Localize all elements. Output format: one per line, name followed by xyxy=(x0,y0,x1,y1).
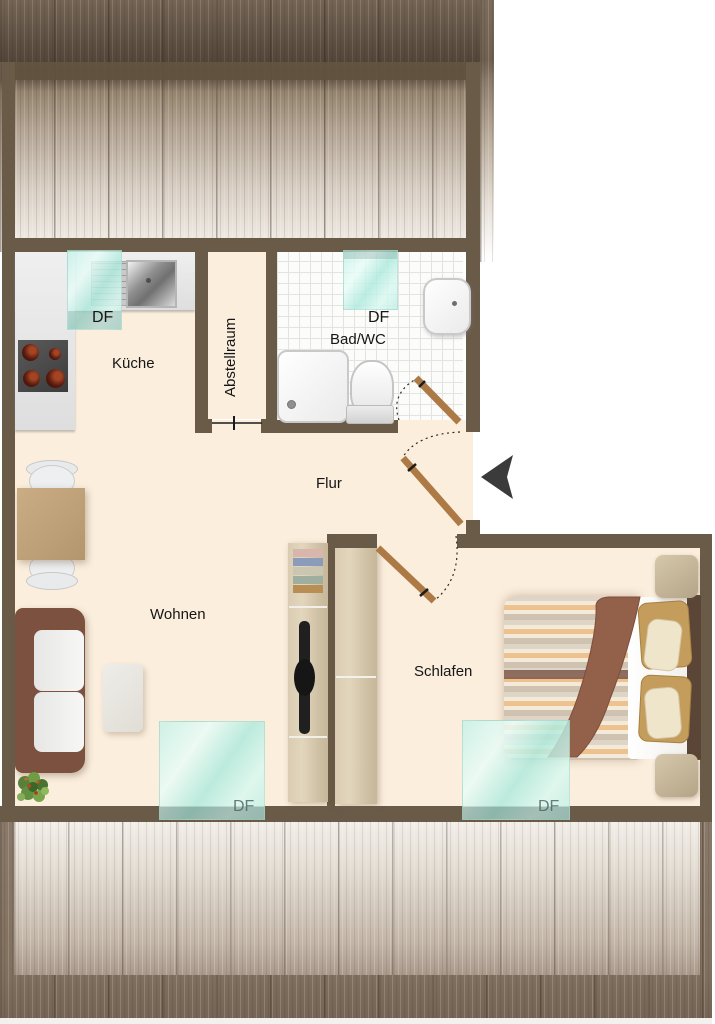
roof-bottom-edge-line xyxy=(0,1018,712,1024)
wall-entry-stub xyxy=(466,520,480,534)
roof-top-outer-shade xyxy=(0,0,494,62)
skylight-label-bedroom: DF xyxy=(538,798,559,816)
skylight-bathroom xyxy=(343,250,398,310)
shower-drain-dot xyxy=(287,400,296,409)
side-table xyxy=(103,664,143,732)
stove-burner xyxy=(23,370,40,387)
wardrobe xyxy=(335,548,377,804)
wall-bottom xyxy=(0,806,712,822)
nightstand xyxy=(655,555,698,598)
bathroom-door-threshold xyxy=(398,419,462,434)
sofa-cushion xyxy=(34,630,84,691)
wall-storage-stub-left xyxy=(195,419,212,433)
room-label-bedroom: Schlafen xyxy=(414,663,472,681)
wall-bedroom-top xyxy=(457,534,712,548)
stove-burner xyxy=(49,348,61,360)
wall-living-bedroom-divider xyxy=(327,534,335,806)
skylight-label-bathroom: DF xyxy=(368,309,389,327)
shelf-divider xyxy=(289,736,327,738)
nightstand xyxy=(655,754,698,797)
roof-bottom-inner xyxy=(14,822,700,975)
wardrobe-divider xyxy=(336,676,376,678)
wall-left xyxy=(2,62,15,806)
sofa xyxy=(15,608,85,773)
skylight-label-kitchen: DF xyxy=(92,309,113,327)
room-label-kitchen: Küche xyxy=(112,355,155,373)
wall-right-lower xyxy=(700,534,712,806)
shelf-divider xyxy=(289,606,327,608)
skylight-edge xyxy=(344,251,397,259)
roof-edge-sliver xyxy=(480,0,494,262)
room-label-living: Wohnen xyxy=(150,606,206,624)
wall-storage-bath xyxy=(266,250,277,433)
roof-top-wall-top xyxy=(2,62,480,80)
toilet-tank xyxy=(346,405,394,424)
skylight-label-living: DF xyxy=(233,798,254,816)
bed-headboard xyxy=(687,595,701,760)
kitchen-faucet-dot xyxy=(146,278,151,283)
room-label-hallway: Flur xyxy=(316,475,342,493)
wall-right-upper xyxy=(466,62,480,432)
tv-stand xyxy=(294,659,315,696)
room-label-storage: Abstellraum xyxy=(222,302,240,397)
wall-kitchen-storage xyxy=(195,250,208,433)
stove-burner xyxy=(22,344,39,361)
room-label-bathroom: Bad/WC xyxy=(330,331,386,349)
dining-chair-back xyxy=(26,572,78,590)
washbasin-faucet-dot xyxy=(452,301,457,306)
floor-plan: Küche Abstellraum Bad/WC Flur Wohnen Sch… xyxy=(0,0,715,1024)
entrance-arrow-icon xyxy=(481,455,513,499)
bed-sheet-white xyxy=(628,597,692,759)
sofa-cushion xyxy=(34,692,84,752)
kitchen-sink-basin xyxy=(126,260,177,308)
roof-band-top xyxy=(0,0,494,252)
shower-tray xyxy=(277,350,349,423)
stove xyxy=(18,340,68,392)
washbasin xyxy=(423,278,471,335)
bed-duvet-gap xyxy=(504,670,640,679)
bookshelf xyxy=(288,543,328,802)
dining-table xyxy=(17,488,85,560)
books xyxy=(293,549,323,593)
roof-band-bottom xyxy=(0,822,712,1024)
stove-burner xyxy=(46,369,65,388)
